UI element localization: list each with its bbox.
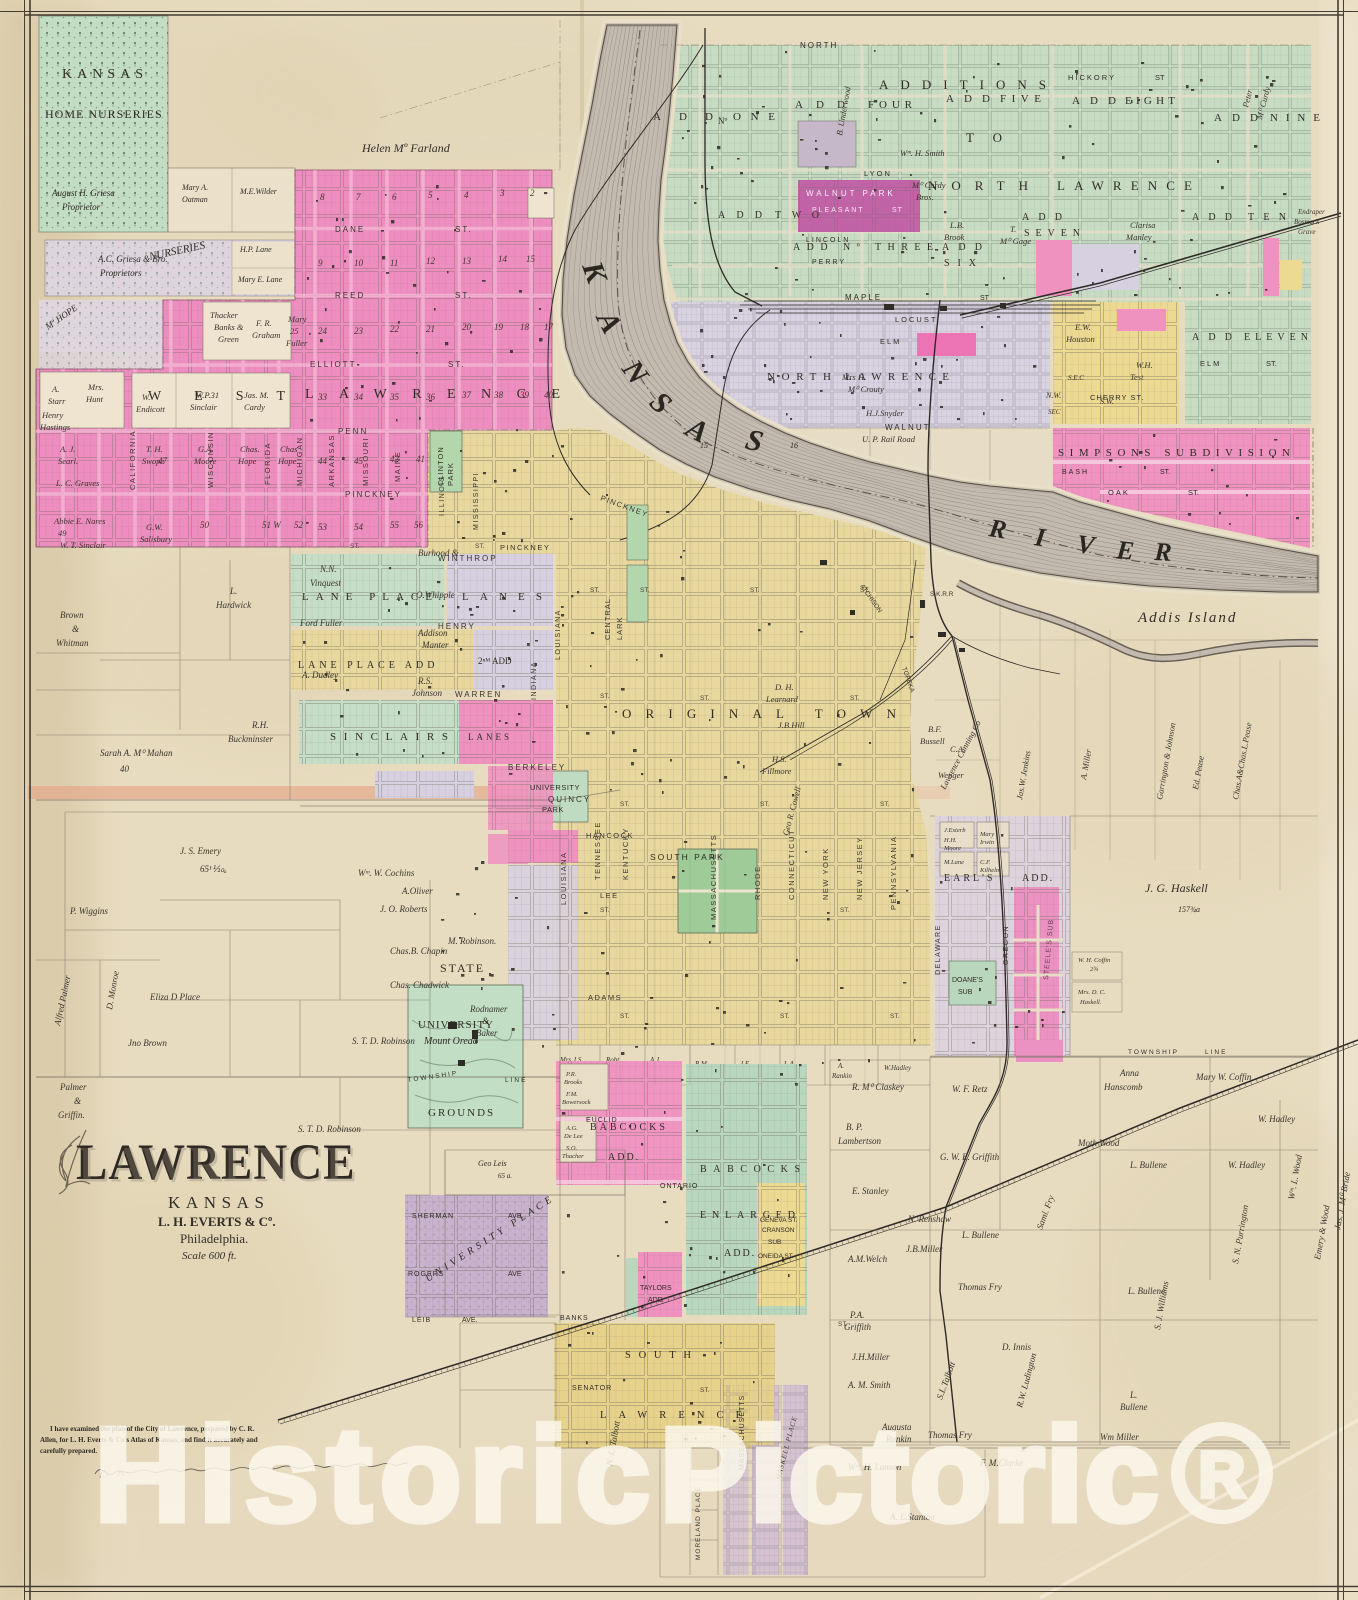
svg-text:BANKS: BANKS	[560, 1315, 589, 1322]
svg-text:ST: ST	[980, 295, 990, 302]
svg-text:ADD.: ADD.	[1022, 873, 1054, 884]
svg-text:B. P.: B. P.	[846, 1122, 863, 1132]
svg-text:W. H. Coffin: W. H. Coffin	[1078, 957, 1110, 964]
svg-text:Mrs. D. C.: Mrs. D. C.	[1077, 989, 1106, 996]
svg-text:15: 15	[526, 254, 536, 264]
svg-text:ST.: ST.	[448, 360, 466, 369]
svg-text:Sarah A. M⁰ Mahan: Sarah A. M⁰ Mahan	[100, 748, 173, 758]
svg-text:CRANSON: CRANSON	[762, 1227, 795, 1234]
svg-text:9: 9	[318, 258, 323, 268]
svg-text:N.N.: N.N.	[319, 564, 337, 574]
svg-text:7: 7	[356, 192, 361, 202]
svg-text:Hardwick: Hardwick	[215, 600, 252, 610]
svg-text:ADD: ADD	[795, 99, 845, 111]
svg-text:ST.: ST.	[600, 907, 610, 914]
svg-text:TENNESSEE: TENNESSEE	[593, 821, 602, 880]
svg-text:Houston: Houston	[1065, 334, 1095, 344]
svg-text:41: 41	[416, 454, 425, 464]
svg-text:ST.: ST.	[600, 693, 610, 700]
svg-text:55: 55	[390, 520, 400, 530]
svg-text:De Lee: De Lee	[563, 1133, 583, 1140]
svg-text:Sinclair: Sinclair	[190, 402, 218, 412]
svg-text:ST.: ST.	[750, 587, 760, 594]
svg-text:A.: A.	[51, 384, 59, 394]
svg-text:R: R	[1153, 537, 1173, 567]
svg-text:S.E.C: S.E.C	[1068, 374, 1084, 382]
svg-text:Manter: Manter	[421, 640, 449, 650]
svg-text:Baker: Baker	[476, 1028, 498, 1038]
svg-text:5: 5	[428, 190, 433, 200]
svg-text:E: E	[1114, 535, 1135, 565]
svg-text:LINE: LINE	[1205, 1049, 1227, 1056]
svg-text:39: 39	[519, 390, 530, 400]
svg-text:Wᵐ. H. Smith: Wᵐ. H. Smith	[900, 148, 945, 158]
svg-text:J. O. Roberts: J. O. Roberts	[380, 904, 428, 914]
svg-text:ADD: ADD	[1192, 212, 1232, 223]
svg-text:Vinquest: Vinquest	[310, 578, 341, 588]
svg-text:W. Hadley: W. Hadley	[1258, 1114, 1295, 1124]
svg-text:S.O.: S.O.	[566, 1145, 578, 1152]
svg-text:Bros.: Bros.	[916, 192, 934, 202]
svg-text:Historic: Historic	[95, 1401, 658, 1548]
svg-text:S.K.R.R: S.K.R.R	[930, 591, 954, 598]
svg-text:Wᵐ. W. Cochins: Wᵐ. W. Cochins	[358, 868, 415, 878]
svg-text:47: 47	[158, 456, 168, 466]
svg-text:ELM: ELM	[1200, 359, 1221, 368]
svg-text:Mary: Mary	[287, 314, 307, 324]
svg-text:ILLINOIS: ILLINOIS	[439, 475, 446, 516]
svg-text:Mrs H.: Mrs H.	[841, 372, 866, 382]
svg-text:Helen Mº Farland: Helen Mº Farland	[361, 141, 451, 155]
svg-text:Searl.: Searl.	[58, 456, 78, 466]
svg-text:17: 17	[544, 322, 554, 332]
svg-text:BERKELEY: BERKELEY	[508, 763, 566, 772]
svg-text:ST.: ST.	[838, 1321, 848, 1328]
svg-text:ADD.: ADD.	[724, 1248, 756, 1259]
svg-text:ST.: ST.	[700, 695, 710, 702]
svg-text:6: 6	[392, 192, 397, 202]
svg-text:NORTH: NORTH	[800, 41, 838, 50]
svg-text:INDIANA: INDIANA	[531, 661, 538, 700]
svg-text:Griffith: Griffith	[844, 1322, 872, 1332]
svg-text:T.: T.	[1010, 224, 1016, 234]
svg-text:ADD: ADD	[648, 1297, 663, 1304]
svg-text:40: 40	[544, 390, 554, 400]
svg-text:W. T. Sinclair: W. T. Sinclair	[60, 540, 107, 550]
svg-text:LANES: LANES	[468, 732, 512, 742]
svg-text:35: 35	[389, 392, 400, 402]
svg-text:LEIB: LEIB	[412, 1317, 431, 1324]
svg-text:44: 44	[318, 456, 328, 466]
svg-text:J. G. Haskell: J. G. Haskell	[1145, 881, 1208, 895]
svg-text:ST.: ST.	[760, 801, 770, 808]
svg-text:OREGON: OREGON	[1003, 925, 1010, 965]
svg-text:Graham: Graham	[252, 330, 280, 340]
svg-text:Wenger: Wenger	[938, 770, 964, 780]
svg-text:25: 25	[290, 326, 299, 336]
svg-text:ELLIOTT: ELLIOTT	[310, 360, 356, 369]
svg-text:Fuller: Fuller	[285, 338, 308, 348]
svg-text:ST.: ST.	[700, 1387, 710, 1394]
svg-text:Nº: Nº	[718, 116, 727, 126]
svg-text:Mrs.: Mrs.	[87, 382, 104, 392]
svg-text:Thomas Fry: Thomas Fry	[958, 1282, 1002, 1292]
svg-text:2ⁿᴹ ADD: 2ⁿᴹ ADD	[478, 656, 512, 666]
svg-text:Addis Island: Addis Island	[1137, 610, 1237, 626]
svg-text:F.M.: F.M.	[565, 1091, 578, 1098]
svg-text:Moore: Moore	[193, 456, 217, 466]
svg-text:Hanscomb: Hanscomb	[1103, 1082, 1143, 1092]
svg-text:Proprietor: Proprietor	[61, 202, 101, 212]
svg-text:Fillmore: Fillmore	[761, 766, 792, 776]
svg-text:QUINCY: QUINCY	[548, 795, 591, 804]
svg-text:REED: REED	[335, 291, 365, 300]
svg-text:WARREN: WARREN	[455, 690, 502, 699]
svg-text:M⁰ Curdy: M⁰ Curdy	[911, 180, 946, 190]
svg-text:ST.: ST.	[455, 291, 473, 300]
svg-text:MAPLE: MAPLE	[845, 293, 882, 302]
svg-text:J.Esterb: J.Esterb	[944, 827, 966, 834]
svg-text:Endicott: Endicott	[135, 404, 165, 414]
svg-text:51 W: 51 W	[262, 520, 282, 530]
svg-text:2¾: 2¾	[1090, 966, 1098, 973]
svg-text:ADD: ADD	[942, 242, 982, 253]
svg-text:DANE: DANE	[335, 225, 365, 234]
svg-text:Brown: Brown	[60, 610, 84, 620]
svg-text:H.H.: H.H.	[943, 837, 957, 844]
svg-text:C.A.: C.A.	[950, 744, 965, 754]
svg-text:CONNECTICUT: CONNECTICUT	[787, 829, 796, 900]
svg-text:ADD: ADD	[1214, 112, 1258, 124]
svg-text:Hope.: Hope.	[277, 456, 299, 466]
svg-text:PINCKNEY: PINCKNEY	[345, 490, 402, 499]
svg-text:GENEVA ST.: GENEVA ST.	[760, 1217, 798, 1224]
svg-text:Burhood &: Burhood &	[418, 548, 459, 558]
svg-text:Green: Green	[218, 334, 239, 344]
svg-text:H.J.Snyder: H.J.Snyder	[865, 408, 904, 418]
svg-text:NEW JERSEY: NEW JERSEY	[855, 836, 864, 900]
svg-text:LINE: LINE	[505, 1077, 527, 1084]
svg-text:52: 52	[294, 520, 304, 530]
svg-text:Brooks: Brooks	[564, 1079, 583, 1086]
svg-text:Mount Oread: Mount Oread	[423, 1036, 479, 1047]
svg-text:SIX: SIX	[944, 258, 977, 269]
svg-text:L. Bullene: L. Bullene	[1129, 1160, 1167, 1170]
svg-text:L.: L.	[229, 586, 237, 596]
svg-text:56: 56	[414, 520, 424, 530]
svg-text:ADD: ADD	[718, 210, 762, 221]
svg-text:August H. Griesa: August H. Griesa	[51, 188, 115, 198]
svg-text:ST.: ST.	[780, 1013, 790, 1020]
svg-text:42: 42	[390, 454, 400, 464]
svg-text:Banks &: Banks &	[214, 322, 244, 332]
svg-text:23: 23	[354, 326, 364, 336]
svg-text:OAK: OAK	[1108, 488, 1130, 497]
svg-text:Grave: Grave	[1298, 228, 1316, 236]
svg-text:ELM: ELM	[880, 337, 901, 346]
svg-text:D. Innis: D. Innis	[1001, 1342, 1031, 1352]
svg-text:Oatman: Oatman	[182, 195, 208, 204]
svg-text:54: 54	[354, 522, 364, 532]
svg-text:&: &	[74, 1096, 81, 1106]
svg-text:GROUNDS: GROUNDS	[428, 1107, 495, 1119]
svg-text:ADD: ADD	[1192, 332, 1232, 343]
svg-text:Learnard: Learnard	[765, 694, 799, 704]
svg-text:19: 19	[494, 322, 504, 332]
svg-text:B.F.: B.F.	[928, 724, 942, 734]
svg-text:S.W.: S.W.	[1100, 397, 1114, 406]
svg-text:ST.: ST.	[620, 801, 630, 808]
svg-text:AVE.: AVE.	[508, 1213, 523, 1220]
svg-text:34: 34	[353, 392, 364, 402]
svg-text:Chas. Chadwick: Chas. Chadwick	[390, 980, 450, 990]
svg-text:ONE: ONE	[733, 111, 775, 123]
svg-text:157¾a: 157¾a	[1178, 905, 1200, 914]
svg-text:ADD: ADD	[946, 93, 990, 105]
svg-text:ST.: ST.	[455, 225, 473, 234]
svg-text:11: 11	[390, 258, 398, 268]
svg-text:F. R.: F. R.	[255, 318, 272, 328]
svg-text:TOWNSHIP: TOWNSHIP	[1128, 1049, 1179, 1056]
svg-text:PARK: PARK	[542, 805, 564, 814]
svg-text:ST: ST	[892, 207, 903, 214]
svg-text:Cardy: Cardy	[244, 402, 265, 412]
svg-text:UNIVERSITY: UNIVERSITY	[530, 783, 580, 792]
svg-text:Manley: Manley	[1125, 232, 1152, 242]
svg-text:CHERRY ST.: CHERRY ST.	[1090, 393, 1144, 402]
svg-text:G.W.: G.W.	[146, 522, 163, 532]
svg-text:HICKORY: HICKORY	[1068, 73, 1116, 82]
svg-text:A. J.: A. J.	[59, 444, 75, 454]
svg-text:40: 40	[120, 764, 130, 774]
svg-text:J.H.Miller: J.H.Miller	[852, 1352, 890, 1362]
svg-text:&: &	[72, 624, 79, 634]
svg-text:Moore: Moore	[943, 845, 961, 852]
svg-text:Haskell.: Haskell.	[1079, 999, 1102, 1006]
svg-text:HOME NURSERIES: HOME NURSERIES	[45, 107, 163, 121]
svg-text:L.B.: L.B.	[949, 220, 964, 230]
svg-text:D. H.: D. H.	[774, 682, 794, 692]
svg-text:R.H.: R.H.	[251, 720, 269, 730]
svg-text:A.M.Welch: A.M.Welch	[847, 1254, 888, 1264]
svg-text:Eliza D Place: Eliza D Place	[149, 992, 200, 1002]
svg-text:J.B.Miller: J.B.Miller	[906, 1244, 943, 1254]
svg-text:N.W.: N.W.	[1045, 391, 1061, 400]
svg-text:Griffin.: Griffin.	[58, 1110, 85, 1120]
svg-text:4: 4	[464, 190, 469, 200]
svg-text:Jno Brown: Jno Brown	[128, 1038, 167, 1048]
svg-text:22: 22	[390, 324, 400, 334]
svg-text:H.S.: H.S.	[771, 754, 787, 764]
svg-text:PENNSYLVANIA: PENNSYLVANIA	[889, 836, 898, 910]
svg-text:G. W. E. Griffith: G. W. E. Griffith	[940, 1152, 1000, 1162]
svg-text:carefully prepared.: carefully prepared.	[40, 1447, 97, 1455]
svg-text:NEW YORK: NEW YORK	[821, 847, 830, 900]
svg-text:53: 53	[318, 522, 328, 532]
svg-text:CALIFORNIA: CALIFORNIA	[128, 430, 137, 490]
svg-text:R. M⁰ Claskey: R. M⁰ Claskey	[851, 1082, 904, 1092]
svg-text:Mary A.: Mary A.	[181, 183, 208, 192]
svg-text:ST.: ST.	[620, 1013, 630, 1020]
svg-text:ST.: ST.	[1188, 488, 1199, 497]
svg-text:LINCOLN: LINCOLN	[806, 237, 850, 244]
svg-text:Bosmack: Bosmack	[1294, 218, 1320, 226]
svg-text:Irwin: Irwin	[979, 839, 994, 846]
svg-text:O.Whipple: O.Whipple	[416, 590, 455, 600]
svg-text:PENN: PENN	[338, 427, 368, 436]
svg-text:SHERMAN: SHERMAN	[412, 1213, 454, 1220]
svg-text:PERRY: PERRY	[812, 259, 846, 266]
svg-text:LAWRENCE: LAWRENCE	[79, 1136, 359, 1193]
svg-text:P.R.: P.R.	[565, 1071, 577, 1078]
svg-text:WALNUT: WALNUT	[885, 423, 930, 432]
svg-text:LOUISIANA: LOUISIANA	[555, 609, 562, 660]
svg-text:LARK: LARK	[615, 616, 624, 640]
svg-text:J. S. Emery: J. S. Emery	[180, 846, 221, 856]
svg-text:M. Robinson.: M. Robinson.	[447, 936, 496, 946]
svg-text:M⁰ Crouty: M⁰ Crouty	[847, 384, 884, 394]
svg-text:ST.: ST.	[890, 1013, 900, 1020]
svg-text:Johnson: Johnson	[412, 688, 442, 698]
svg-text:21: 21	[426, 324, 435, 334]
svg-text:A. Dudley: A. Dudley	[301, 670, 338, 680]
svg-text:2: 2	[530, 188, 535, 198]
svg-text:L. H. EVERTS & Cº.: L. H. EVERTS & Cº.	[158, 1214, 276, 1229]
svg-text:50: 50	[200, 520, 210, 530]
svg-text:ROGERS: ROGERS	[408, 1271, 444, 1278]
svg-text:W. Hadley: W. Hadley	[1228, 1160, 1265, 1170]
svg-text:Whitman: Whitman	[56, 638, 89, 648]
svg-text:Proprietors: Proprietors	[99, 268, 142, 278]
svg-text:Ford Fuller: Ford Fuller	[299, 618, 343, 628]
svg-text:N. Renshaw: N. Renshaw	[907, 1214, 951, 1224]
svg-text:E.W.: E.W.	[1074, 322, 1091, 332]
svg-text:ST.: ST.	[1266, 359, 1277, 368]
svg-text:PLEASANT: PLEASANT	[812, 207, 865, 214]
svg-text:&: &	[482, 1016, 489, 1026]
svg-text:ST: ST	[1155, 73, 1165, 82]
svg-text:TEN: TEN	[1248, 212, 1286, 223]
svg-text:8: 8	[320, 192, 325, 202]
svg-text:C.F.: C.F.	[980, 859, 991, 866]
svg-text:M.E.Wilder: M.E.Wilder	[239, 187, 278, 196]
svg-text:49: 49	[58, 528, 67, 538]
svg-text:G.A.: G.A.	[198, 444, 214, 454]
svg-text:AVE.: AVE.	[462, 1317, 477, 1324]
svg-text:A.G.: A.G.	[565, 1125, 578, 1132]
svg-text:10: 10	[354, 258, 364, 268]
svg-text:ADDITIONS: ADDITIONS	[879, 77, 1046, 92]
svg-text:ST.: ST.	[880, 801, 890, 808]
svg-text:45: 45	[354, 456, 364, 466]
svg-text:PARK: PARK	[446, 462, 455, 486]
svg-text:Chas: Chas	[280, 444, 298, 454]
svg-text:W. F. Retz: W. F. Retz	[952, 1084, 988, 1094]
svg-text:Geo Leis: Geo Leis	[478, 1159, 507, 1168]
svg-text:H.P. Lane: H.P. Lane	[239, 245, 272, 254]
svg-text:Henry: Henry	[41, 410, 63, 420]
svg-text:ST.: ST.	[860, 587, 870, 594]
svg-text:Palmer: Palmer	[59, 1082, 87, 1092]
svg-text:W.: W.	[142, 392, 150, 402]
svg-text:EARL'S: EARL'S	[944, 873, 995, 884]
svg-text:Test: Test	[1130, 372, 1144, 382]
svg-text:A.Oliver: A.Oliver	[401, 886, 433, 896]
svg-text:38: 38	[493, 390, 504, 400]
svg-text:P. Wiggins: P. Wiggins	[69, 906, 108, 916]
svg-text:Brook: Brook	[944, 232, 965, 242]
svg-text:KANSAS: KANSAS	[62, 67, 148, 82]
svg-text:ADAMS: ADAMS	[588, 993, 622, 1002]
svg-text:Buckminster: Buckminster	[228, 734, 273, 744]
svg-text:SUB: SUB	[958, 989, 973, 996]
svg-text:Moth Wood: Moth Wood	[1077, 1138, 1120, 1148]
svg-text:ST.: ST.	[350, 543, 360, 550]
svg-text:Lambertson: Lambertson	[837, 1136, 882, 1146]
svg-text:ST.: ST.	[590, 587, 600, 594]
svg-text:W.Hadley: W.Hadley	[884, 1064, 912, 1072]
svg-text:M⁰ Gage: M⁰ Gage	[999, 236, 1031, 246]
svg-text:ST.: ST.	[1160, 469, 1170, 476]
svg-text:Rodnamer: Rodnamer	[469, 1004, 508, 1014]
svg-text:Anna: Anna	[1119, 1068, 1139, 1078]
svg-text:ONTARIO: ONTARIO	[660, 1183, 698, 1190]
svg-text:Hunt: Hunt	[85, 394, 104, 404]
svg-text:L.: L.	[1129, 1390, 1137, 1400]
svg-text:U. P. Rail Road: U. P. Rail Road	[862, 434, 916, 444]
svg-text:Thacker: Thacker	[210, 310, 239, 320]
svg-text:RHODE: RHODE	[753, 865, 762, 900]
svg-text:A.: A.	[837, 1062, 844, 1070]
svg-text:Scale 600 ft.: Scale 600 ft.	[182, 1250, 237, 1262]
svg-text:18: 18	[520, 322, 530, 332]
svg-text:Mary E. Lane: Mary E. Lane	[237, 275, 283, 284]
svg-text:ST.: ST.	[850, 695, 860, 702]
svg-text:L. C. Graves: L. C. Graves	[55, 478, 100, 488]
svg-text:BASH: BASH	[1062, 469, 1089, 476]
svg-text:14: 14	[498, 254, 508, 264]
svg-text:T. H.: T. H.	[146, 444, 163, 454]
svg-text:S. T. D. Robinson: S. T. D. Robinson	[298, 1124, 361, 1134]
svg-text:PINCKNEY: PINCKNEY	[500, 543, 550, 552]
svg-text:L. Bullene: L. Bullene	[961, 1230, 999, 1240]
svg-text:13: 13	[462, 256, 472, 266]
svg-text:Addison: Addison	[417, 628, 448, 638]
svg-text:STATE: STATE	[440, 961, 485, 975]
svg-text:16: 16	[790, 441, 798, 450]
svg-text:ONEIDA ST.: ONEIDA ST.	[758, 1253, 794, 1260]
svg-text:LOUISIANA: LOUISIANA	[559, 851, 568, 905]
svg-text:A. M. Smith: A. M. Smith	[847, 1380, 891, 1390]
svg-text:W.P.31: W.P.31	[196, 390, 219, 400]
svg-text:24: 24	[318, 326, 328, 336]
svg-text:ST.: ST.	[840, 907, 850, 914]
svg-text:LEE: LEE	[600, 891, 619, 900]
svg-text:Thacher: Thacher	[562, 1153, 584, 1160]
svg-text:Rankin: Rankin	[831, 1072, 852, 1080]
svg-text:W.H.: W.H.	[1136, 360, 1153, 370]
svg-text:Chas.: Chas.	[240, 444, 260, 454]
svg-text:Hastings: Hastings	[39, 422, 71, 432]
svg-text:Salisbury: Salisbury	[140, 534, 172, 544]
svg-text:LYON: LYON	[864, 169, 892, 178]
svg-text:M.Lane: M.Lane	[943, 859, 964, 866]
svg-text:S. T. D. Robinson: S. T. D. Robinson	[352, 1036, 415, 1046]
svg-text:Hope: Hope	[237, 456, 257, 466]
svg-text:65¹⅒ₐ: 65¹⅒ₐ	[200, 864, 227, 874]
svg-text:Chas.B. Chapin: Chas.B. Chapin	[390, 946, 448, 956]
svg-text:FLORIDA: FLORIDA	[263, 442, 272, 485]
